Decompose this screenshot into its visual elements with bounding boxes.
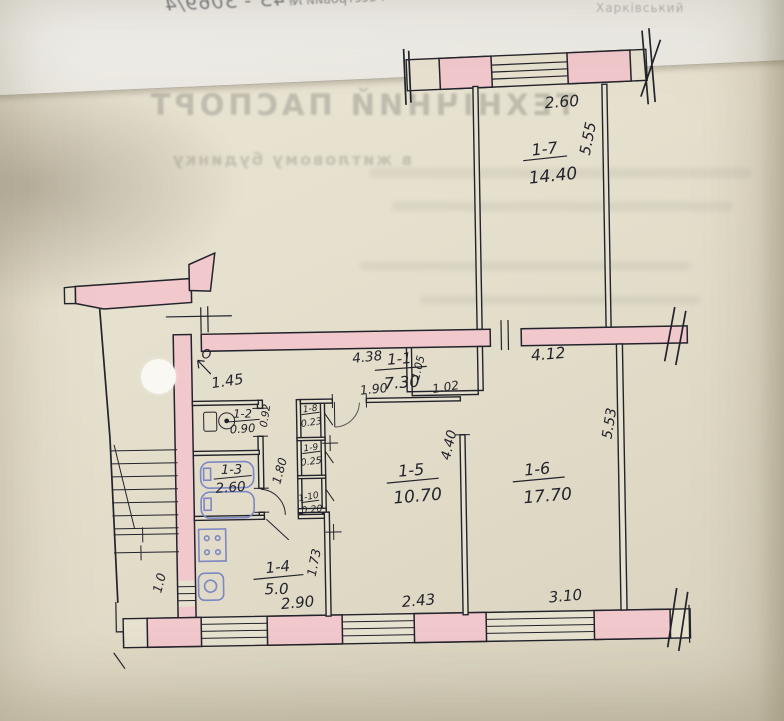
balcony-window-wall [403, 28, 663, 115]
room-1-1-number: 1-1 [387, 349, 413, 369]
porch-wall [75, 278, 191, 309]
stairwell [64, 253, 237, 604]
closet-divider [297, 437, 325, 440]
corner-tick [114, 653, 125, 669]
dim-balcony-right: 5.55 [576, 120, 600, 156]
dim-room6-bottom: 3.10 [548, 586, 583, 607]
room-1-7-area: 14.40 [528, 164, 578, 189]
stove-burner-icon [204, 536, 209, 541]
top-wall-right [521, 326, 687, 346]
bath-door-arc [261, 489, 285, 515]
room-1-5-number: 1-5 [397, 460, 425, 481]
dim-top-wall-right: 4.12 [530, 344, 566, 365]
wall-end-line [689, 605, 690, 643]
bathtub-tap-icon [204, 498, 211, 510]
corner-step [116, 602, 124, 648]
dim-kitchen-side: 1.73 [304, 547, 324, 577]
scanned-technical-passport-page: Реєстровий № 43 - 3069/4 Харківський ТЕХ… [0, 0, 784, 721]
top-wall-left [201, 329, 490, 351]
entrance-mark: O [201, 346, 211, 361]
room-1-2-number: 1-2 [233, 406, 252, 420]
room7-east-wall [602, 84, 611, 327]
room-1-2-area: 0.90 [229, 421, 256, 437]
landing-lines [114, 527, 180, 561]
room5-north-wall [366, 397, 460, 403]
room-1-3-number: 1-3 [221, 463, 242, 478]
porch-wall-flag [189, 253, 216, 291]
dim-wc-side: 0.92 [258, 403, 274, 428]
kitchen-door-leaf [266, 519, 288, 540]
stove-icon [199, 529, 227, 561]
hole-punch-sticker [141, 359, 176, 394]
wall-pier [439, 56, 492, 89]
bathtub-tap-icon [204, 468, 211, 480]
wc-bath-divider [193, 450, 259, 455]
room7-west-wall [473, 86, 482, 329]
wall-pier [147, 617, 201, 647]
room-1-6-area: 17.70 [523, 484, 573, 508]
plan-labels: 2.60 5.55 1-7 14.40 4.12 5.53 4.38 1-1 7… [141, 91, 624, 615]
room6-east-wall [616, 344, 627, 610]
partition [258, 436, 264, 488]
sink-icon [198, 573, 223, 600]
dim-entrance-width: 1.45 [210, 372, 244, 392]
niche-east-wall [477, 346, 483, 390]
sink-bowl-icon [204, 580, 216, 592]
closet-1-9-area: 0.25 [300, 455, 322, 468]
dim-stairs-bottom: 1.0 [149, 571, 169, 594]
wall-pier [594, 609, 670, 639]
stove-burner-icon [215, 536, 220, 541]
floor-plan-drawing: 2.60 5.55 1-7 14.40 4.12 5.53 4.38 1-1 7… [0, 0, 784, 721]
wc-north-wall [192, 400, 258, 405]
room-1-6-number: 1-6 [523, 458, 551, 479]
hatch-ticks [201, 306, 208, 333]
room-1-4-number: 1-4 [265, 557, 291, 577]
dim-kitchen-bottom: 2.90 [280, 592, 315, 613]
closet-east-wall [320, 399, 326, 513]
closet-divider [298, 475, 326, 478]
room-1-3-area: 2.60 [215, 479, 246, 497]
dim-room6-right: 5.53 [600, 407, 621, 440]
stove-burner-icon [216, 550, 221, 555]
dim-room5-bottom: 2.43 [401, 590, 436, 611]
room-1-7-number: 1-7 [531, 138, 560, 160]
toilet-icon [204, 412, 217, 431]
wall-pier [567, 50, 631, 84]
dim-hall-top: 4.38 [351, 348, 383, 367]
closet-1-10-area: 0.20 [301, 503, 323, 516]
dim-bath-side: 1.80 [270, 456, 291, 486]
room-1-5-area: 10.70 [393, 484, 443, 508]
landing-line [166, 316, 232, 317]
dim-room5-side: 4.40 [438, 429, 460, 462]
door-jamb-room7 [501, 320, 509, 350]
stove-burner-icon [205, 550, 210, 555]
entrance-arrow [198, 360, 211, 374]
stair-steps [111, 450, 178, 529]
wall-pier [267, 615, 342, 645]
room5-door-arc [334, 403, 359, 427]
dim-room5-entry: 1.90 [359, 380, 388, 398]
kitchen-room5-wall [324, 512, 331, 616]
dim-balcony-width: 2.60 [544, 92, 580, 112]
room5-room6-wall [460, 435, 468, 615]
wall-pier [414, 612, 486, 642]
stairwell-outer-wall [100, 309, 118, 603]
closet-1-8-area: 0.23 [300, 416, 323, 430]
porch-wall-cap [64, 287, 75, 304]
